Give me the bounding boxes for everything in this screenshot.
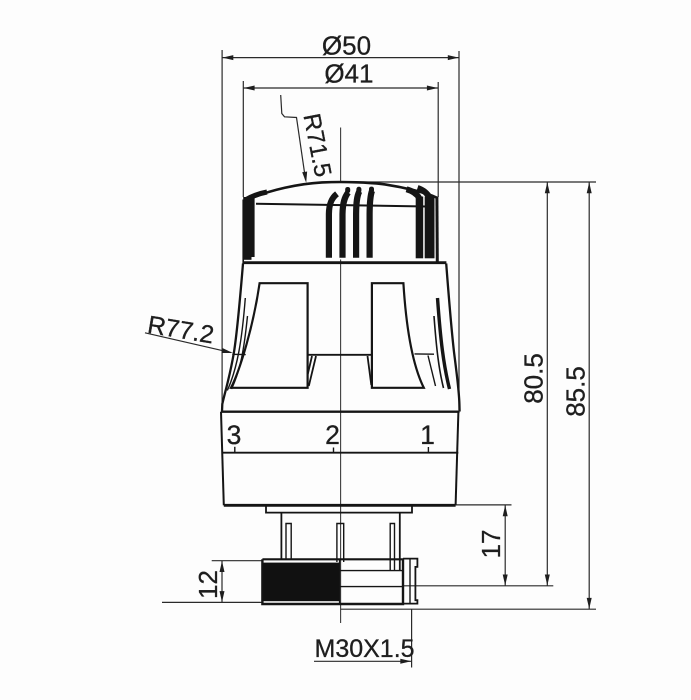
svg-text:85.5: 85.5 bbox=[561, 366, 591, 417]
svg-text:17: 17 bbox=[476, 530, 506, 559]
svg-text:M30X1.5: M30X1.5 bbox=[315, 635, 415, 663]
svg-text:12: 12 bbox=[193, 570, 223, 599]
svg-text:2: 2 bbox=[325, 420, 340, 450]
svg-text:80.5: 80.5 bbox=[519, 353, 549, 404]
svg-text:Ø50: Ø50 bbox=[322, 31, 371, 61]
svg-text:1: 1 bbox=[420, 420, 435, 450]
svg-text:3: 3 bbox=[227, 420, 242, 450]
svg-text:Ø41: Ø41 bbox=[324, 59, 373, 89]
